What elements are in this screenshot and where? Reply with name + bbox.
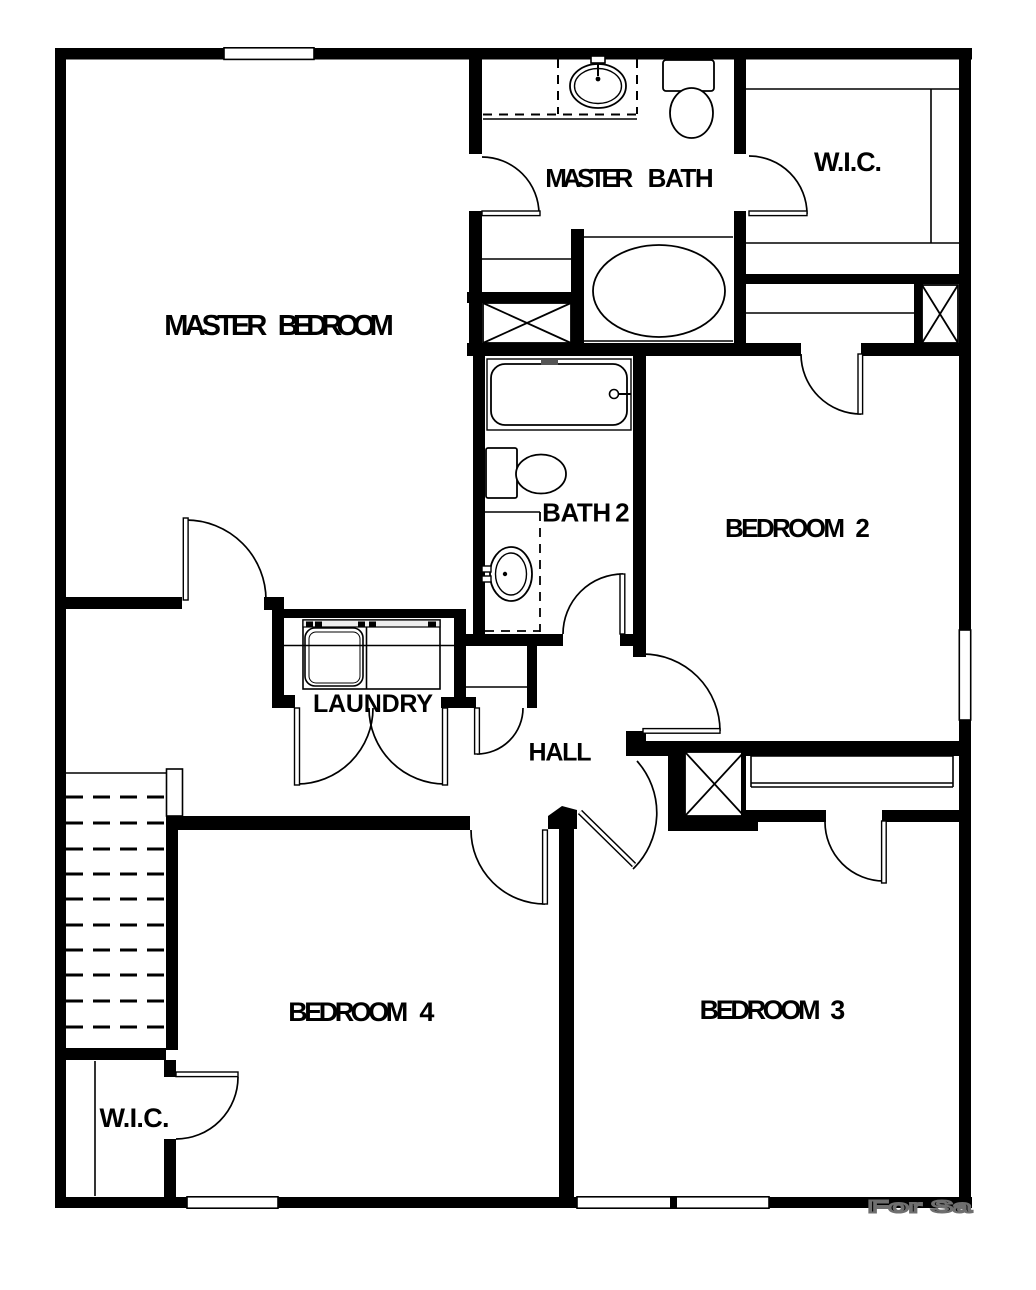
svg-text:BEDROOM: BEDROOM: [700, 995, 821, 1025]
svg-text:2: 2: [615, 498, 629, 528]
svg-text:BEDROOM: BEDROOM: [725, 513, 845, 543]
svg-text:LAUNDRY: LAUNDRY: [313, 690, 433, 718]
svg-text:3: 3: [830, 995, 845, 1025]
svg-text:W.I.C.: W.I.C.: [100, 1103, 170, 1133]
svg-text:MASTER: MASTER: [164, 310, 267, 342]
svg-text:BATH: BATH: [542, 498, 611, 528]
svg-text:W.I.C.: W.I.C.: [814, 147, 882, 177]
svg-text:MASTER: MASTER: [545, 163, 633, 193]
svg-text:BEDROOM: BEDROOM: [278, 310, 394, 342]
svg-text:2: 2: [855, 513, 869, 543]
svg-text:BEDROOM: BEDROOM: [288, 997, 408, 1027]
svg-text:HALL: HALL: [529, 739, 592, 767]
svg-text:For Sa: For Sa: [868, 1196, 973, 1216]
svg-text:4: 4: [419, 997, 434, 1027]
svg-text:BATH: BATH: [648, 163, 714, 193]
